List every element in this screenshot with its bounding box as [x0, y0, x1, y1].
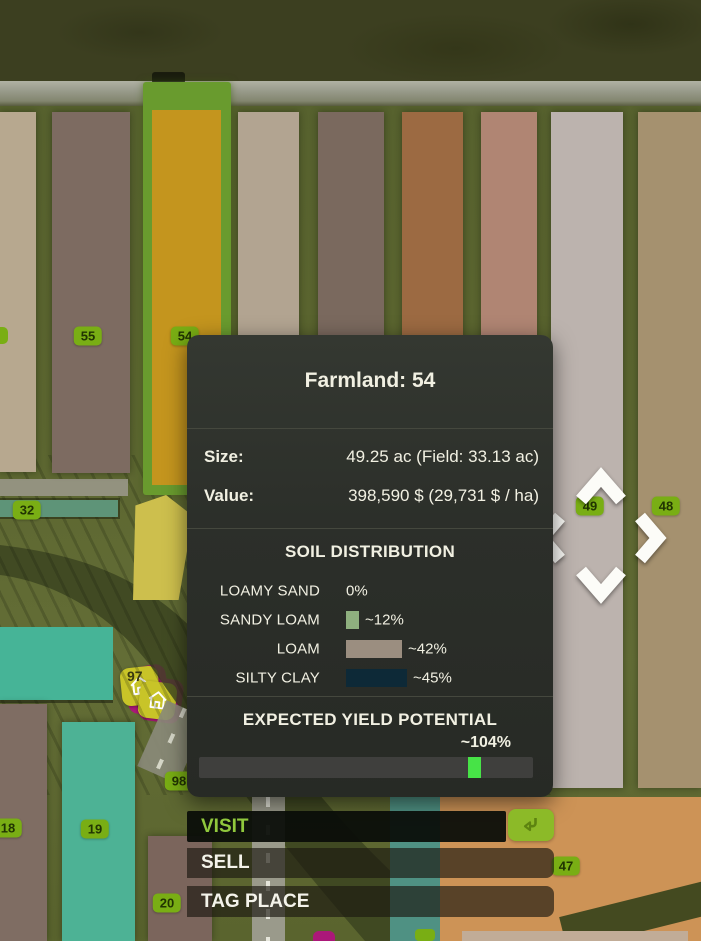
value-value: 398,590 $ (29,731 $ / ha): [348, 486, 539, 506]
marker-number: 97: [127, 668, 143, 684]
yield-bar-track: [199, 757, 533, 778]
soil-percentage: 0%: [346, 582, 368, 599]
soil-type-label: SILTY CLAY: [235, 669, 320, 686]
soil-row: LOAM~42%: [187, 634, 553, 663]
soil-type-label: SANDY LOAM: [220, 611, 320, 628]
farmland-map-screen: 55543249489818192047 97 Farmland: 54 Siz…: [0, 0, 701, 941]
soil-row: SANDY LOAM~12%: [187, 605, 553, 634]
visit-button[interactable]: VISIT: [187, 811, 506, 842]
soil-color-swatch: [346, 669, 407, 687]
divider: [187, 696, 553, 697]
road-dashes: [154, 707, 187, 774]
divider: [187, 428, 553, 429]
field-badge-19: 19: [81, 820, 109, 839]
field-badge-48: 48: [652, 497, 680, 516]
soil-color-swatch: [346, 640, 402, 658]
farmland-info-panel: Farmland: 54 Size: 49.25 ac (Field: 33.1…: [187, 335, 553, 797]
return-arrow-icon: [519, 814, 543, 836]
field-strip-49[interactable]: [551, 112, 623, 788]
size-value: 49.25 ac (Field: 33.13 ac): [346, 447, 539, 467]
sell-label: SELL: [201, 852, 250, 874]
field-badge-55: 55: [74, 327, 102, 346]
field-badge-32: 32: [13, 501, 41, 520]
yield-percentage: ~104%: [425, 734, 511, 752]
bottom-edge-badge: [415, 929, 435, 941]
field-badge-49: 49: [576, 497, 604, 516]
soil-row: SILTY CLAY~45%: [187, 663, 553, 692]
bottom-edge-marker-magenta: [313, 931, 335, 941]
visit-label: VISIT: [201, 816, 249, 838]
soil-percentage: ~12%: [365, 611, 404, 628]
yield-bar-indicator: [468, 757, 481, 778]
tag-place-label: TAG PLACE: [201, 891, 309, 913]
edge-badge-sliver: [0, 327, 8, 344]
field-badge-18: 18: [0, 819, 22, 838]
bottom-tan-band: [462, 931, 688, 941]
value-label: Value:: [204, 486, 254, 506]
field-teal[interactable]: [0, 627, 113, 700]
soil-color-swatch: [346, 611, 359, 629]
soil-distribution-rows: LOAMY SAND0%SANDY LOAM~12%LOAM~42%SILTY …: [187, 576, 553, 692]
soil-distribution-title: SOIL DISTRIBUTION: [187, 542, 553, 562]
field-badge-47: 47: [552, 857, 580, 876]
size-label: Size:: [204, 447, 244, 467]
field-strip[interactable]: [0, 112, 36, 472]
soil-type-label: LOAM: [277, 640, 320, 657]
panel-title: Farmland: 54: [187, 369, 553, 393]
soil-row: LOAMY SAND0%: [187, 576, 553, 605]
field-strip-48[interactable]: [638, 112, 701, 788]
field-badge-20: 20: [153, 894, 181, 913]
tag-place-button[interactable]: TAG PLACE: [187, 886, 554, 917]
yield-title: EXPECTED YIELD POTENTIAL: [187, 710, 553, 730]
soil-type-label: LOAMY SAND: [220, 582, 320, 599]
soil-percentage: ~45%: [413, 669, 452, 686]
field-strip-55[interactable]: [52, 112, 130, 473]
sell-button[interactable]: SELL: [187, 848, 554, 878]
soil-percentage: ~42%: [408, 640, 447, 657]
road-segment: [0, 479, 128, 496]
divider: [187, 528, 553, 529]
enter-key-button[interactable]: [508, 809, 554, 841]
